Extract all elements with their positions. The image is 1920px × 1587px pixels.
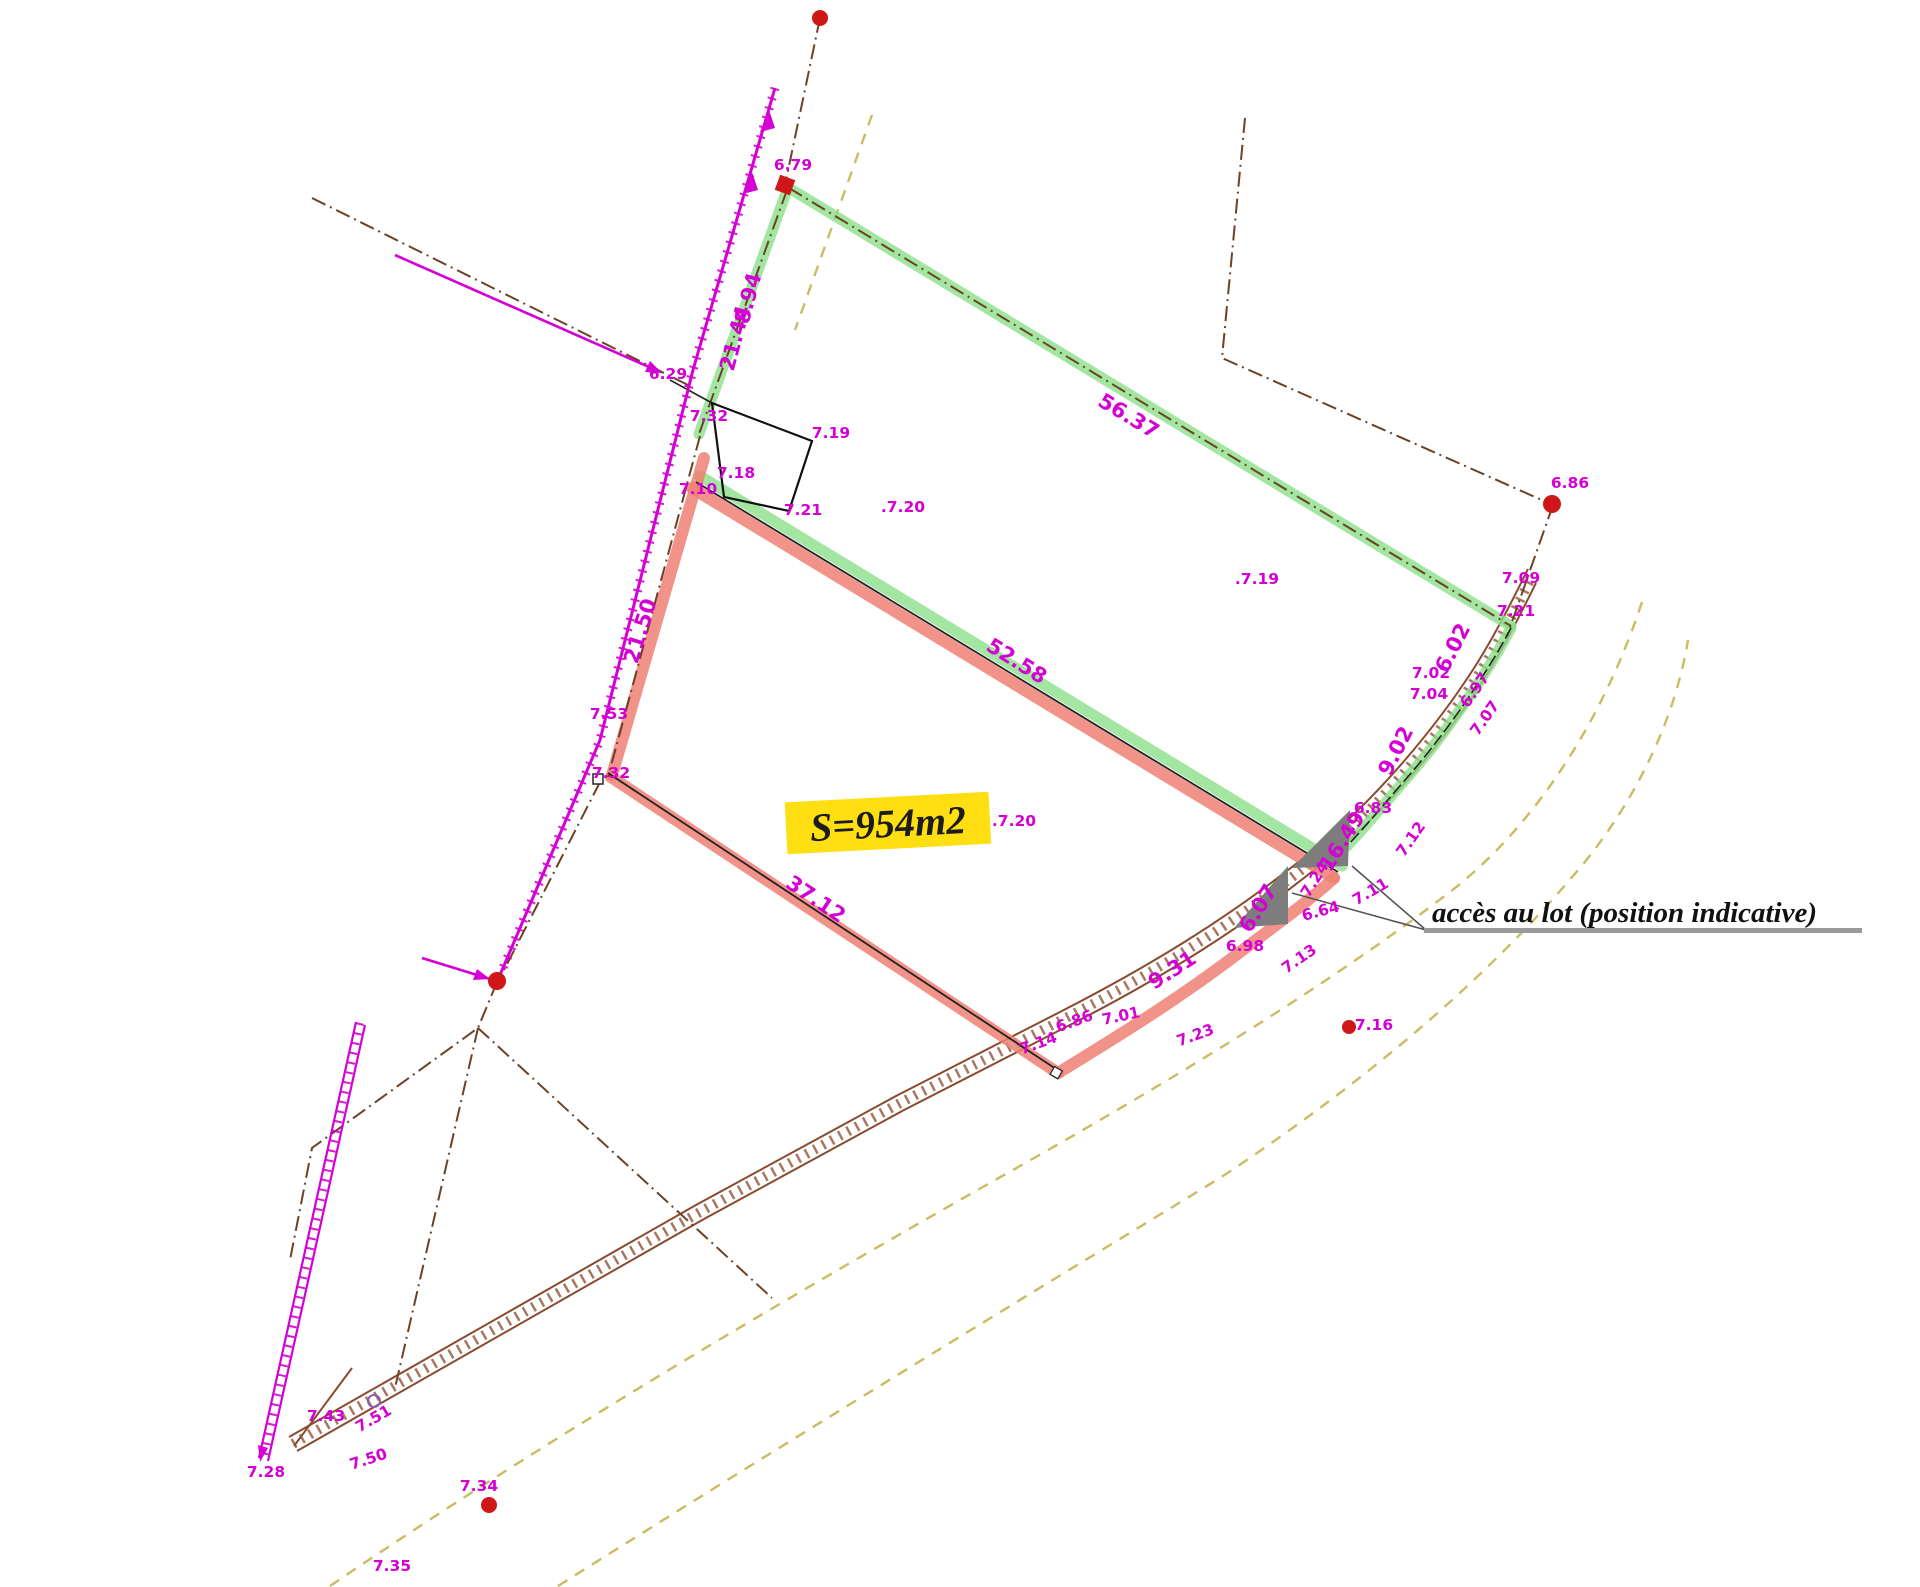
khaki-dash-line [558, 640, 1688, 1586]
magenta-alignment-lines [259, 88, 775, 1461]
red-boundary-bands [611, 458, 1334, 1073]
magenta-southwest-hatch [263, 1023, 360, 1460]
road-band [289, 569, 1536, 1451]
elevation-label: 7.13 [1278, 941, 1320, 978]
magenta-main-line-hatch [497, 88, 775, 982]
elevation-label: .7.20 [992, 812, 1036, 830]
elevation-label: 6.83 [1354, 799, 1392, 817]
elevation-label: 7.34 [460, 1477, 498, 1495]
elevation-label: 7.02 [1412, 664, 1450, 682]
elevation-label: 7.16 [1355, 1016, 1393, 1034]
elevation-label: 6.29 [649, 365, 687, 383]
arrowhead-to-dot [473, 969, 490, 980]
elevation-label: 7.12 [1393, 818, 1430, 860]
survey-plan-page: S=954m2 accès au lot (position indicativ… [0, 0, 1920, 1587]
survey-point-dot [488, 972, 506, 990]
khaki-dash-line [795, 115, 872, 330]
boundary-junction-branch-south [395, 1028, 478, 1388]
elevation-label: 7.19 [812, 424, 850, 442]
elevation-label: 6.79 [774, 156, 812, 174]
elevation-label: 7.43 [307, 1407, 345, 1425]
khaki-dash-line [330, 602, 1642, 1586]
survey-point-dot [812, 10, 828, 26]
elevation-label: 7.18 [717, 464, 755, 482]
elevation-label: 7.50 [347, 1445, 389, 1474]
elevation-label: .7.19 [1235, 570, 1279, 588]
area-annotation: S=954m2 [785, 792, 991, 855]
elevation-label: 7.04 [1410, 685, 1448, 703]
elevation-label: 6.86 [1053, 1006, 1095, 1036]
survey-point-dot [1543, 495, 1561, 513]
elevation-label: .7.20 [881, 498, 925, 516]
magenta-arrowheads [258, 110, 775, 1462]
boundary-diagonal-northwest [312, 198, 688, 385]
dimension-label: 21.44 [715, 303, 755, 373]
elevation-label: 7.09 [1502, 569, 1540, 587]
elevation-label: 7.11 [1349, 874, 1391, 909]
elevation-label: 7.23 [1174, 1020, 1216, 1050]
elevation-label: 7.10 [679, 480, 717, 498]
elevation-label: 7.32 [690, 407, 728, 425]
magenta-southwest-line-a [259, 1022, 356, 1458]
area-label: S=954m2 [809, 797, 967, 850]
road-hatch-texture [293, 576, 1532, 1444]
magenta-southwest-line-b [268, 1025, 365, 1461]
survey-plan-canvas: S=954m2 accès au lot (position indicativ… [0, 0, 1920, 1587]
elevation-label: 7.32 [592, 764, 630, 782]
boundary-neighbor-L [1222, 118, 1553, 505]
lot-division-lines [608, 380, 1511, 1069]
magenta-diagonal-line [395, 255, 658, 371]
elevation-label: 6.98 [1226, 937, 1264, 955]
elevation-label: 7.53 [590, 705, 628, 723]
elevation-label: 7.28 [247, 1463, 285, 1481]
green-band-north [789, 188, 1511, 626]
road-edge-upper [289, 569, 1528, 1437]
elevation-label: 7.35 [373, 1557, 411, 1575]
elevation-label: 7.21 [1497, 602, 1535, 620]
khaki-dashed-lines [330, 115, 1688, 1586]
boundary-lines [290, 18, 1553, 1388]
access-note-label: accès au lot (position indicative) [1432, 897, 1817, 929]
elevation-label: 7.21 [784, 501, 822, 519]
survey-point-dot [481, 1497, 497, 1513]
elevation-label: 6.86 [1551, 474, 1589, 492]
